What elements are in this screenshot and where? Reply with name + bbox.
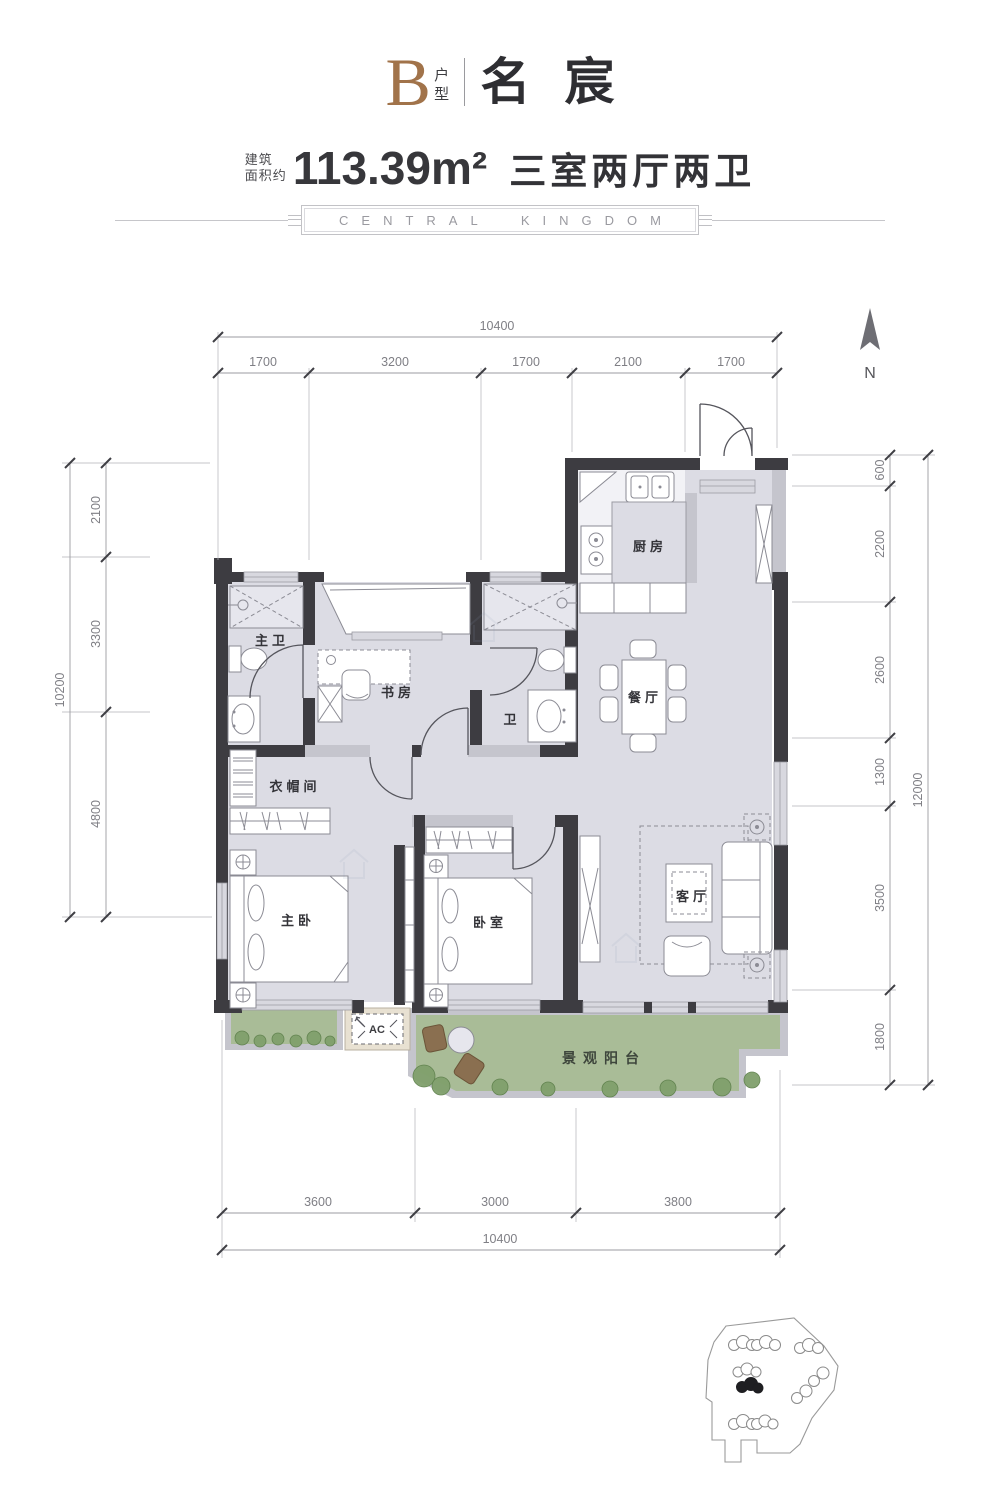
shelf-unit <box>230 750 256 806</box>
bathroom-sink <box>228 696 260 742</box>
entry-door <box>700 404 752 456</box>
toilet <box>538 647 576 673</box>
nightstand <box>424 984 448 1007</box>
dimension-right: 600 2200 2600 1300 3500 1800 12000 <box>792 450 935 1090</box>
kitchen-counter <box>580 583 686 613</box>
cloakroom-label: 衣帽间 <box>269 779 320 794</box>
balcony-sliding-door <box>583 1002 768 1013</box>
dim-segment: 4800 <box>89 800 103 828</box>
armchair <box>664 936 710 976</box>
dim-total: 10400 <box>480 319 515 333</box>
dim-segment: 3300 <box>89 620 103 648</box>
entry-threshold <box>700 480 755 493</box>
dim-segment: 1800 <box>873 1023 887 1051</box>
ac-label: AC <box>369 1024 385 1036</box>
dim-total: 10200 <box>53 673 67 708</box>
site-plan <box>706 1318 838 1462</box>
balcony: 景观阳台 <box>408 1008 788 1098</box>
north-label: N <box>864 365 876 382</box>
dining-chair <box>630 734 656 752</box>
window <box>774 762 787 845</box>
kitchen-sink <box>626 472 674 502</box>
ac-platform: AC <box>345 1008 410 1050</box>
stove <box>581 526 612 574</box>
dim-total: 10400 <box>483 1232 518 1246</box>
floorplan-drawing: 景观阳台 AC <box>0 0 1000 1501</box>
duct-shaft <box>756 505 772 583</box>
nightstand <box>424 855 448 878</box>
light-well <box>405 847 414 1002</box>
bathroom-sink <box>528 690 576 742</box>
balcony-table <box>448 1027 474 1053</box>
dining-chair <box>600 665 618 690</box>
bed <box>424 878 532 984</box>
wardrobe <box>426 827 512 853</box>
living-label: 客厅 <box>676 889 710 904</box>
study-cabinet <box>318 686 342 722</box>
window <box>217 883 227 959</box>
dim-segment: 3000 <box>481 1195 509 1209</box>
dim-segment: 2100 <box>89 496 103 524</box>
bed <box>230 876 348 982</box>
bay-window <box>322 584 470 634</box>
dining-chair <box>630 640 656 658</box>
dim-segment: 3800 <box>664 1195 692 1209</box>
balcony-label: 景观阳台 <box>562 1050 646 1066</box>
nightstand <box>230 983 256 1008</box>
master-bedroom-label: 主卧 <box>281 913 315 928</box>
dim-segment: 1700 <box>249 355 277 369</box>
dim-segment: 600 <box>873 460 887 481</box>
dining-label: 餐厅 <box>627 690 662 705</box>
study-label: 书房 <box>381 685 415 700</box>
dim-total: 12000 <box>911 773 925 808</box>
dim-segment: 2600 <box>873 656 887 684</box>
shower <box>228 586 303 628</box>
dining-chair <box>668 697 686 722</box>
tv-console <box>580 836 600 962</box>
dining-chair <box>668 665 686 690</box>
dim-segment: 3600 <box>304 1195 332 1209</box>
bedroom-label: 卧室 <box>473 915 507 930</box>
dim-segment: 2200 <box>873 530 887 558</box>
window <box>244 572 298 582</box>
dim-segment: 2100 <box>614 355 642 369</box>
kitchen-label: 厨房 <box>633 539 667 554</box>
sofa <box>722 842 772 954</box>
dining-chair <box>600 697 618 722</box>
window <box>490 572 541 582</box>
dim-segment: 3500 <box>873 884 887 912</box>
dim-segment: 1700 <box>717 355 745 369</box>
dim-segment: 1300 <box>873 758 887 786</box>
balcony-chair <box>422 1024 448 1053</box>
bath-label: 卫 <box>503 712 520 727</box>
shower <box>484 584 577 630</box>
dim-segment: 3200 <box>381 355 409 369</box>
nightstand <box>230 850 256 875</box>
north-arrow: N <box>860 308 880 382</box>
window <box>448 1000 540 1010</box>
dim-segment: 1700 <box>512 355 540 369</box>
master-bath-label: 主卫 <box>255 633 289 648</box>
toilet <box>229 646 267 672</box>
window <box>242 1000 352 1010</box>
window <box>774 950 787 1002</box>
hanging-rack <box>230 808 330 834</box>
dimension-left: 10200 2100 3300 4800 <box>53 458 212 922</box>
floorplan-page: B 户型 名宸 建筑 面积约 113.39m² 三室两厅两卫 CENTRAL K… <box>0 0 1000 1501</box>
